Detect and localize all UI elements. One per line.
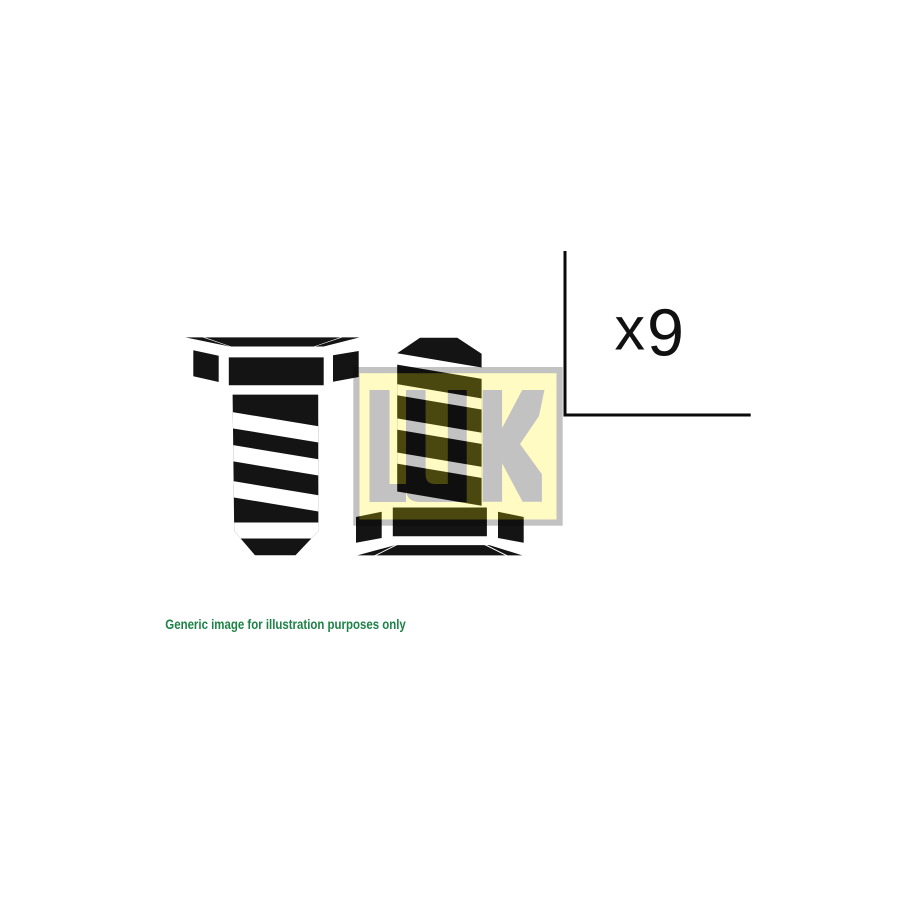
svg-text:9: 9 [647,297,684,371]
svg-text:x: x [615,294,646,362]
svg-text:Generic image for illustration: Generic image for illustration purposes … [165,616,406,632]
